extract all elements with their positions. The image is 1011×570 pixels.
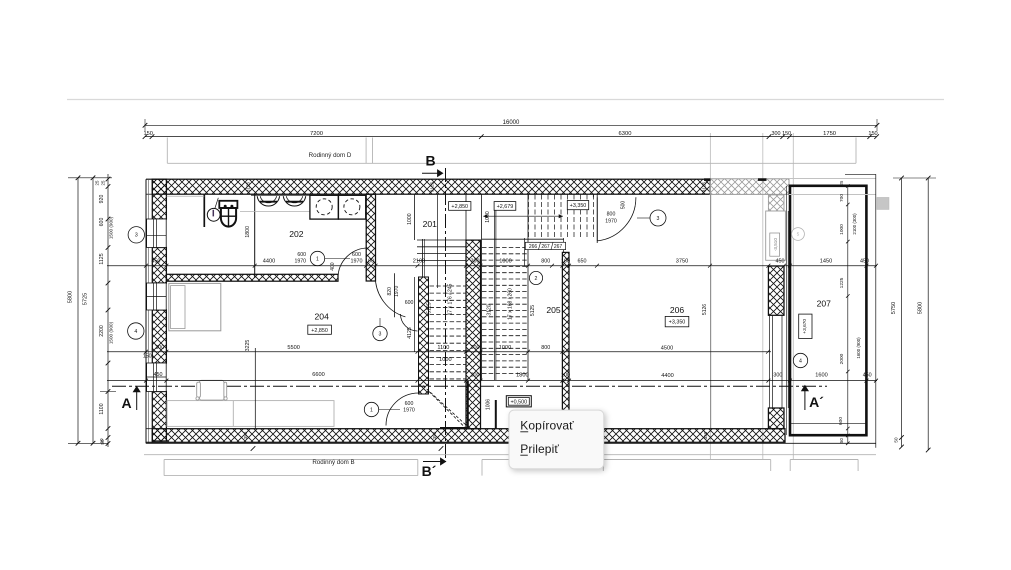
svg-text:5750: 5750 [891, 302, 897, 314]
svg-text:7200: 7200 [310, 131, 323, 137]
svg-text:100: 100 [561, 258, 570, 264]
svg-text:1600: 1600 [815, 372, 827, 378]
svg-text:2000: 2000 [839, 353, 845, 364]
svg-text:+2,679: +2,679 [497, 204, 514, 210]
svg-text:300: 300 [155, 345, 164, 351]
svg-text:25: 25 [839, 180, 844, 185]
svg-text:5125: 5125 [530, 305, 536, 316]
svg-text:450: 450 [863, 372, 872, 378]
svg-text:3125: 3125 [430, 181, 435, 192]
svg-text:1970: 1970 [294, 259, 306, 265]
svg-text:+3,350: +3,350 [570, 203, 587, 209]
svg-text:600: 600 [352, 252, 361, 258]
svg-text:1000: 1000 [439, 357, 451, 363]
svg-text:4400: 4400 [263, 258, 275, 264]
svg-text:Prilepiť: Prilepiť [520, 442, 559, 456]
svg-text:350: 350 [432, 431, 437, 439]
svg-text:5: 5 [797, 232, 800, 238]
svg-text:1000: 1000 [499, 345, 511, 351]
svg-text:300: 300 [471, 372, 480, 378]
svg-text:1600 (900): 1600 (900) [856, 337, 861, 359]
svg-text:266: 266 [529, 244, 538, 250]
svg-text:1970: 1970 [394, 286, 400, 297]
svg-text:3: 3 [379, 331, 382, 337]
svg-text:1450: 1450 [820, 258, 832, 264]
svg-text:1100: 1100 [99, 403, 105, 414]
svg-text:2100: 2100 [413, 258, 425, 264]
svg-text:5126: 5126 [702, 304, 708, 315]
svg-text:3225: 3225 [245, 340, 251, 352]
svg-text:920: 920 [99, 195, 105, 204]
svg-text:267: 267 [554, 244, 563, 250]
svg-text:1800: 1800 [516, 372, 528, 378]
svg-text:1970: 1970 [605, 218, 617, 224]
svg-text:2100 (300): 2100 (300) [852, 213, 857, 235]
svg-text:4: 4 [134, 329, 137, 335]
svg-text:A: A [121, 395, 131, 411]
svg-text:500: 500 [621, 201, 627, 210]
svg-text:1000: 1000 [839, 224, 845, 235]
svg-text:1970: 1970 [351, 259, 363, 265]
svg-text:+2,850: +2,850 [451, 204, 468, 210]
svg-text:600: 600 [297, 252, 306, 258]
svg-text:3: 3 [135, 233, 138, 239]
svg-text:B: B [425, 152, 435, 168]
svg-text:450: 450 [860, 258, 869, 264]
svg-text:350: 350 [243, 431, 248, 439]
svg-text:1100: 1100 [437, 345, 449, 351]
svg-text:5800: 5800 [68, 291, 74, 303]
svg-text:5800: 5800 [918, 302, 924, 314]
svg-text:4500: 4500 [661, 345, 673, 351]
svg-text:3125: 3125 [246, 181, 251, 192]
svg-text:800: 800 [541, 258, 550, 264]
svg-text:100: 100 [365, 258, 374, 264]
svg-text:800: 800 [541, 345, 550, 351]
svg-text:3120: 3120 [487, 304, 493, 315]
svg-text:700: 700 [839, 194, 845, 202]
svg-text:1500 (900): 1500 (900) [109, 321, 114, 344]
svg-text:150: 150 [868, 131, 877, 137]
svg-text:300: 300 [471, 345, 480, 351]
svg-text:100: 100 [561, 372, 570, 378]
svg-text:Kopírovať: Kopírovať [520, 419, 574, 433]
svg-text:600: 600 [405, 401, 414, 407]
svg-text:1000: 1000 [407, 213, 413, 225]
svg-text:150: 150 [782, 131, 791, 137]
svg-text:50: 50 [100, 439, 105, 445]
svg-text:450: 450 [154, 372, 163, 378]
svg-text:50: 50 [839, 438, 844, 443]
svg-text:4125: 4125 [407, 327, 413, 339]
svg-text:4400: 4400 [661, 373, 673, 379]
svg-text:5500: 5500 [287, 345, 299, 351]
svg-text:1000: 1000 [499, 258, 511, 264]
svg-text:1750: 1750 [823, 131, 836, 137]
svg-text:Rodinný dom B: Rodinný dom B [312, 459, 354, 466]
svg-text:16000: 16000 [503, 120, 520, 126]
svg-text:3125: 3125 [702, 181, 707, 192]
svg-text:1800: 1800 [245, 226, 251, 238]
svg-text:-3,510: -3,510 [773, 238, 778, 251]
svg-text:6600: 6600 [312, 372, 324, 378]
svg-text:300: 300 [772, 131, 781, 137]
svg-text:201: 201 [423, 219, 438, 229]
svg-text:5125: 5125 [426, 302, 432, 313]
svg-text:1006: 1006 [486, 399, 492, 410]
svg-text:650: 650 [578, 258, 587, 264]
svg-text:1125: 1125 [99, 253, 105, 264]
svg-text:400: 400 [330, 262, 336, 271]
svg-text:800: 800 [607, 211, 616, 217]
svg-text:350: 350 [703, 431, 708, 439]
svg-text:3750: 3750 [676, 258, 688, 264]
svg-text:25: 25 [95, 180, 100, 185]
svg-text:5725: 5725 [83, 293, 89, 305]
svg-text:Rodinný dom D: Rodinný dom D [309, 152, 352, 159]
svg-text:+3,350: +3,350 [669, 320, 686, 326]
svg-text:+3,670: +3,670 [802, 319, 808, 334]
svg-text:1000: 1000 [485, 211, 491, 223]
svg-text:25: 25 [101, 180, 106, 185]
svg-text:1225: 1225 [839, 277, 845, 288]
svg-text:600: 600 [405, 300, 414, 306]
svg-text:50: 50 [894, 437, 899, 443]
svg-text:600: 600 [99, 218, 105, 227]
svg-text:300: 300 [471, 258, 480, 264]
svg-text:4: 4 [799, 358, 802, 364]
svg-text:207: 207 [817, 299, 832, 309]
svg-text:2200: 2200 [99, 325, 105, 337]
svg-text:150: 150 [143, 353, 152, 359]
svg-text:267: 267 [541, 244, 550, 250]
svg-text:206: 206 [670, 305, 685, 315]
svg-text:17 x 176 / 245: 17 x 176 / 245 [448, 283, 454, 315]
svg-text:B´: B´ [422, 463, 437, 479]
svg-text:300: 300 [773, 372, 782, 378]
svg-text:450: 450 [776, 258, 785, 264]
svg-text:600: 600 [838, 417, 844, 425]
svg-text:450: 450 [151, 258, 160, 264]
svg-text:3: 3 [657, 216, 660, 222]
svg-text:17 x 168 / 260: 17 x 168 / 260 [508, 288, 514, 320]
svg-text:820: 820 [387, 287, 393, 296]
svg-text:150: 150 [144, 131, 153, 137]
svg-text:1970: 1970 [403, 407, 415, 413]
svg-text:+0,500: +0,500 [510, 399, 527, 405]
svg-text:6300: 6300 [619, 131, 632, 137]
svg-text:204: 204 [315, 311, 330, 321]
svg-text:A´: A´ [809, 394, 824, 410]
svg-text:205: 205 [546, 305, 561, 315]
svg-text:1500 (900): 1500 (900) [109, 216, 114, 239]
svg-text:1: 1 [316, 256, 319, 262]
svg-text:+2,850: +2,850 [311, 328, 328, 334]
svg-text:202: 202 [289, 229, 304, 239]
svg-text:1: 1 [370, 407, 373, 413]
svg-text:2: 2 [535, 276, 538, 282]
